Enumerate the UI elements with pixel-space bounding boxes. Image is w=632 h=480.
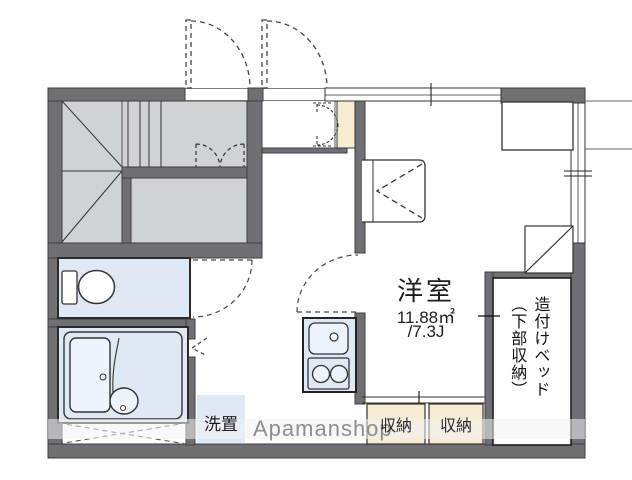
toilet-room: [58, 258, 190, 318]
bed-note-line2: （下部収納）: [505, 296, 528, 431]
bathtub-icon: [70, 338, 110, 412]
hall-closet: [313, 101, 355, 148]
toilet-icon: [62, 271, 115, 305]
sink-icon: [309, 323, 348, 354]
storage-label-a: 収納: [366, 412, 426, 436]
washer-label: 洗置: [196, 410, 246, 435]
room-door-swing: [297, 255, 358, 312]
adjacent-structure-lines: [585, 101, 632, 149]
toilet-door-swing: [193, 260, 252, 317]
wall-cabinet: [362, 160, 425, 222]
bath-folding-door: [192, 338, 207, 356]
floor-plan: Apamanshop 洋室 11.88㎡ /7.3J 収納 収納 洗置 造付けベ…: [0, 0, 632, 480]
bed-note-line1: 造付けベッド: [528, 296, 551, 431]
counter-top-right: [502, 102, 573, 150]
hall-closet-door-swing: [313, 103, 338, 146]
entry-door-swing: [186, 20, 327, 88]
kitchen-unit: [303, 318, 356, 392]
washbasin-icon: [110, 388, 138, 414]
bed-steps: [525, 226, 573, 273]
storage-label-b: 収納: [429, 412, 483, 436]
bed-note: 造付けベッド （下部収納）: [505, 296, 551, 431]
room-area-tatami: /7.3J: [376, 322, 476, 342]
